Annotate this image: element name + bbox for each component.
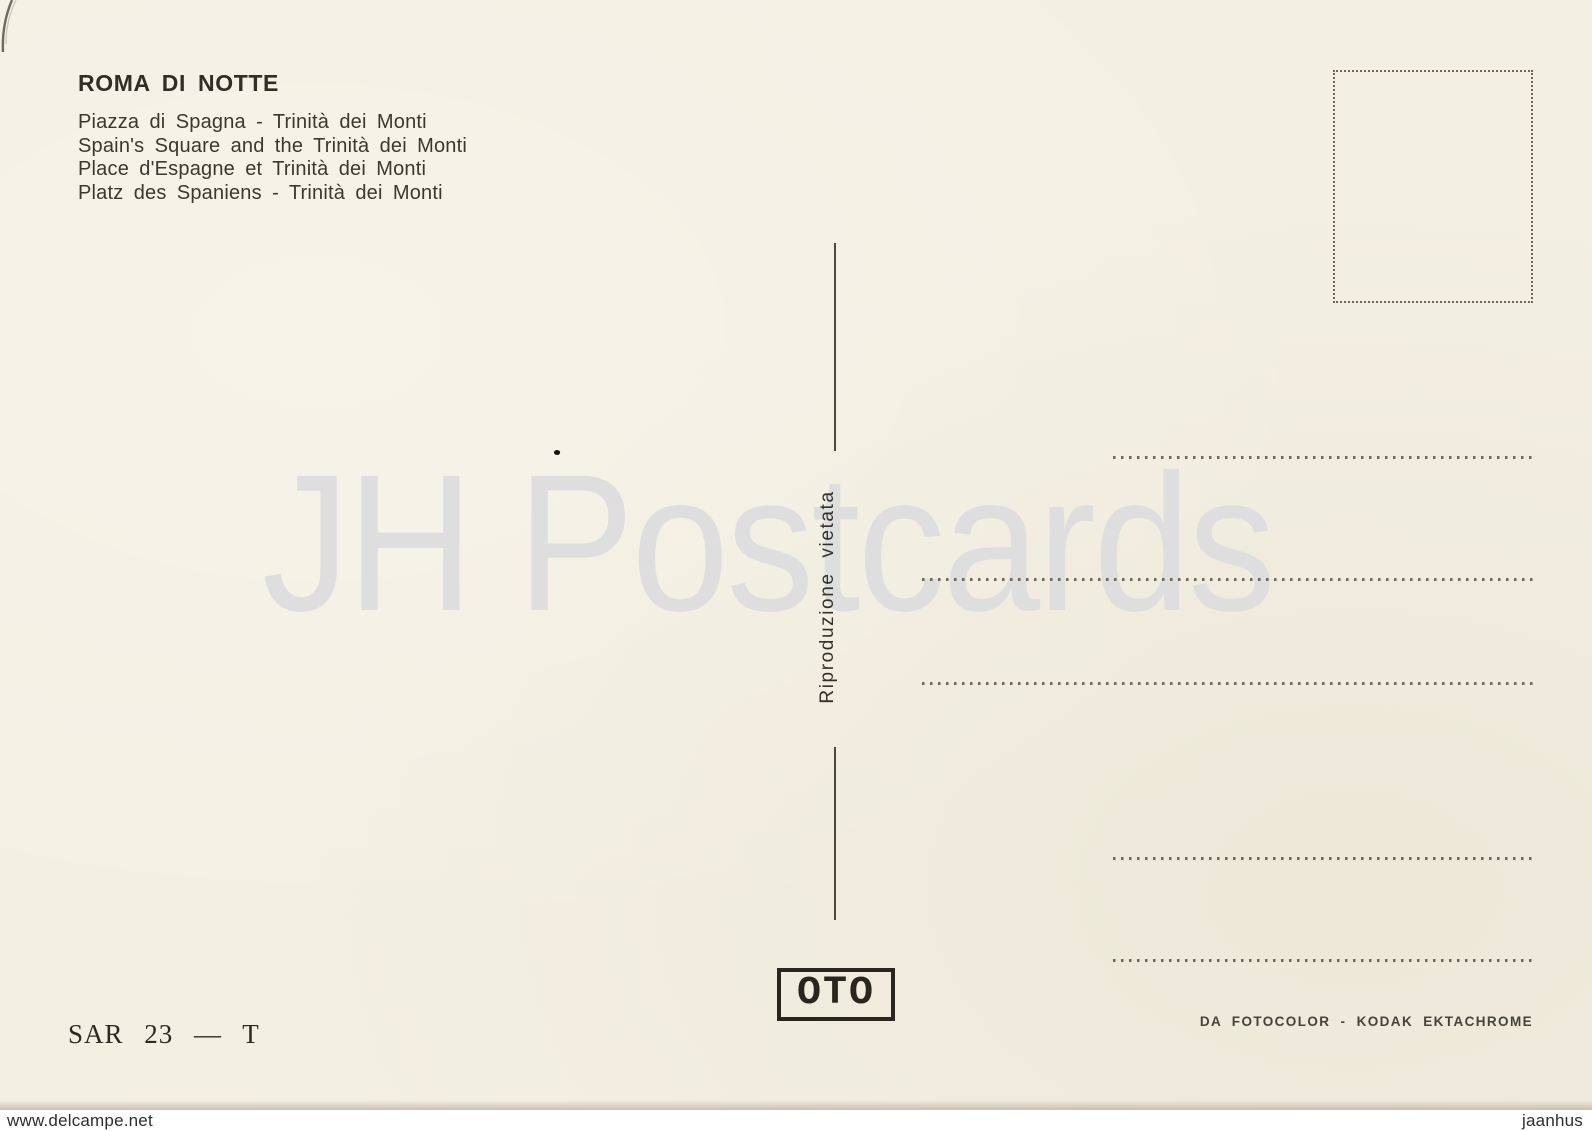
address-line xyxy=(922,682,1533,685)
address-line xyxy=(922,578,1533,581)
site-watermark: www.delcampe.net xyxy=(7,1110,153,1131)
series-code: SAR 23 — T xyxy=(68,1019,260,1050)
caption-german: Platz des Spaniens - Trinità dei Monti xyxy=(78,182,467,206)
caption-italian: Piazza di Spagna - Trinità dei Monti xyxy=(78,111,467,135)
divider-line-bottom xyxy=(834,747,836,920)
scanned-postcard-back: JH Postcards ROMA DI NOTTE Piazza di Spa… xyxy=(0,0,1592,1131)
postcard-title: ROMA DI NOTTE xyxy=(78,70,467,97)
address-line xyxy=(1113,456,1533,459)
reproduction-notice: Riproduzione vietata xyxy=(817,490,839,703)
seller-watermark: jaanhus xyxy=(1522,1110,1583,1131)
card-edge-shadow xyxy=(0,1100,1592,1110)
address-line xyxy=(1113,959,1533,962)
caption-english: Spain's Square and the Trinità dei Monti xyxy=(78,135,467,159)
postcard-card: JH Postcards ROMA DI NOTTE Piazza di Spa… xyxy=(0,0,1592,1110)
publisher-logo: OTO xyxy=(777,968,895,1021)
footer-strip: www.delcampe.net jaanhus xyxy=(0,1110,1592,1131)
address-line xyxy=(1113,857,1533,860)
center-watermark: JH Postcards xyxy=(262,446,1273,641)
stamp-box xyxy=(1333,70,1533,303)
caption-french: Place d'Espagne et Trinità dei Monti xyxy=(78,158,467,182)
corner-curl-mark xyxy=(0,0,24,62)
film-credit: DA FOTOCOLOR - KODAK EKTACHROME xyxy=(1200,1014,1533,1029)
divider-line-top xyxy=(834,243,836,451)
title-block: ROMA DI NOTTE Piazza di Spagna - Trinità… xyxy=(78,70,467,205)
